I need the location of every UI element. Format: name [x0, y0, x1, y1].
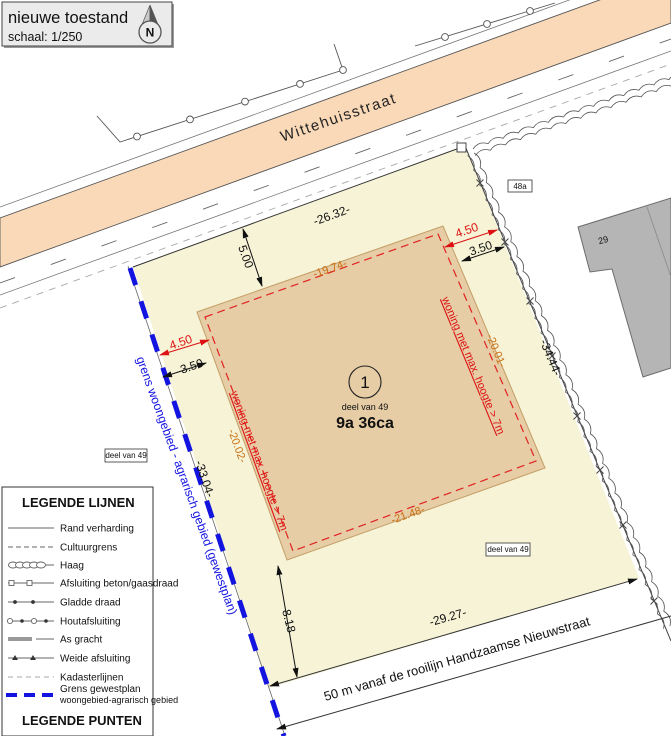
legend-box: LEGENDE LIJNEN Rand verharding Cultuurgr… — [2, 487, 178, 736]
svg-text:48a: 48a — [513, 182, 527, 191]
svg-text:Grens gewestplan: Grens gewestplan — [60, 684, 141, 695]
svg-text:Afsluiting beton/gaasdraad: Afsluiting beton/gaasdraad — [60, 579, 178, 590]
legend-lines-heading: LEGENDE LIJNEN — [22, 495, 135, 510]
plot-area: 9a 36ca — [336, 415, 394, 432]
svg-text:Weide afsluiting: Weide afsluiting — [60, 654, 130, 665]
title-box: nieuwe toestand schaal: 1/250 N — [2, 2, 174, 48]
svg-text:deel van 49: deel van 49 — [105, 451, 147, 460]
site-plan-canvas: Wittehuisstraat 29 — [0, 0, 671, 736]
svg-text:As gracht: As gracht — [60, 635, 102, 646]
svg-text:Houtafsluiting: Houtafsluiting — [60, 617, 121, 628]
legend-points-heading: LEGENDE PUNTEN — [22, 713, 142, 728]
site-plan-drawing: Wittehuisstraat 29 — [0, 0, 671, 736]
part-label-right-box: deel van 49 — [486, 543, 530, 556]
svg-text:Kadasterlijnen: Kadasterlijnen — [60, 673, 123, 684]
svg-text:Cultuurgrens: Cultuurgrens — [60, 543, 117, 554]
neighbor-building — [578, 198, 671, 377]
svg-text:woongebied-agrarisch gebied: woongebied-agrarisch gebied — [59, 695, 178, 705]
svg-text:Rand verharding: Rand verharding — [60, 524, 134, 535]
svg-text:Gladde draad: Gladde draad — [60, 598, 121, 609]
part-label-left-box: deel van 49 — [105, 449, 147, 462]
boundary-point-marker — [457, 143, 466, 152]
plot-part-label: deel van 49 — [342, 402, 389, 412]
north-letter: N — [146, 26, 155, 40]
neighbor-48a-box: 48a — [508, 180, 532, 192]
drawing-scale: schaal: 1/250 — [8, 30, 82, 44]
drawing-title: nieuwe toestand — [8, 9, 128, 27]
plot-number: 1 — [360, 373, 369, 392]
svg-text:deel van 49: deel van 49 — [487, 545, 529, 554]
svg-text:Haag: Haag — [60, 561, 84, 572]
